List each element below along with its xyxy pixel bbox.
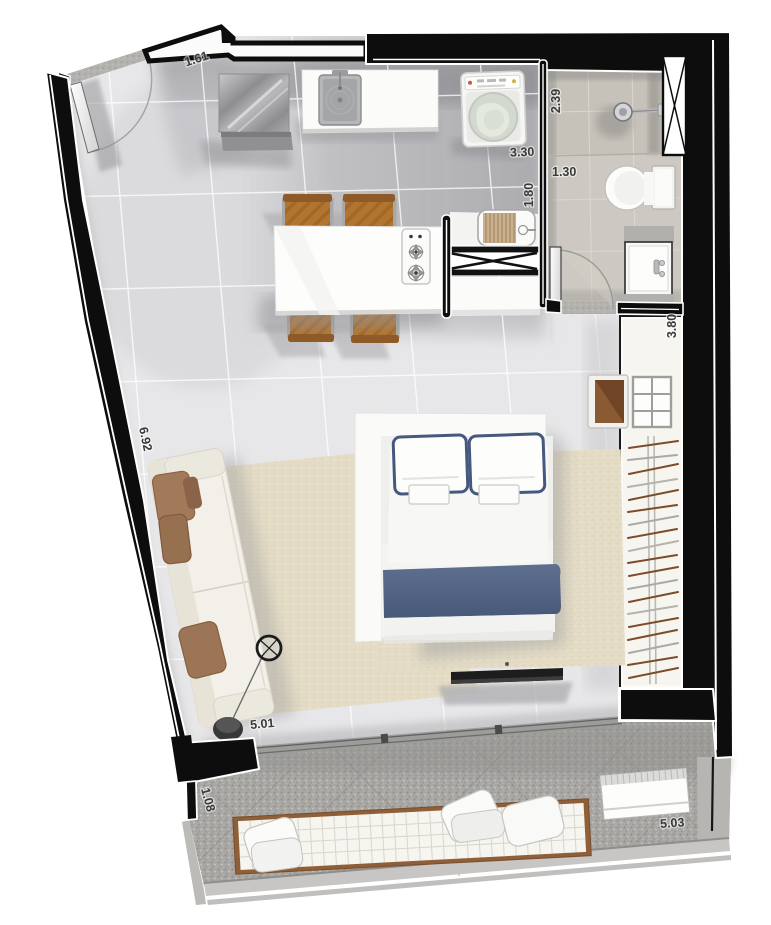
- svg-text:3.80: 3.80: [665, 314, 679, 338]
- svg-text:3.30: 3.30: [510, 145, 535, 160]
- svg-text:1.80: 1.80: [522, 183, 536, 207]
- svg-text:2.39: 2.39: [549, 89, 563, 113]
- svg-text:5.01: 5.01: [250, 716, 276, 732]
- svg-text:1.30: 1.30: [552, 165, 576, 179]
- svg-text:5.03: 5.03: [660, 815, 685, 831]
